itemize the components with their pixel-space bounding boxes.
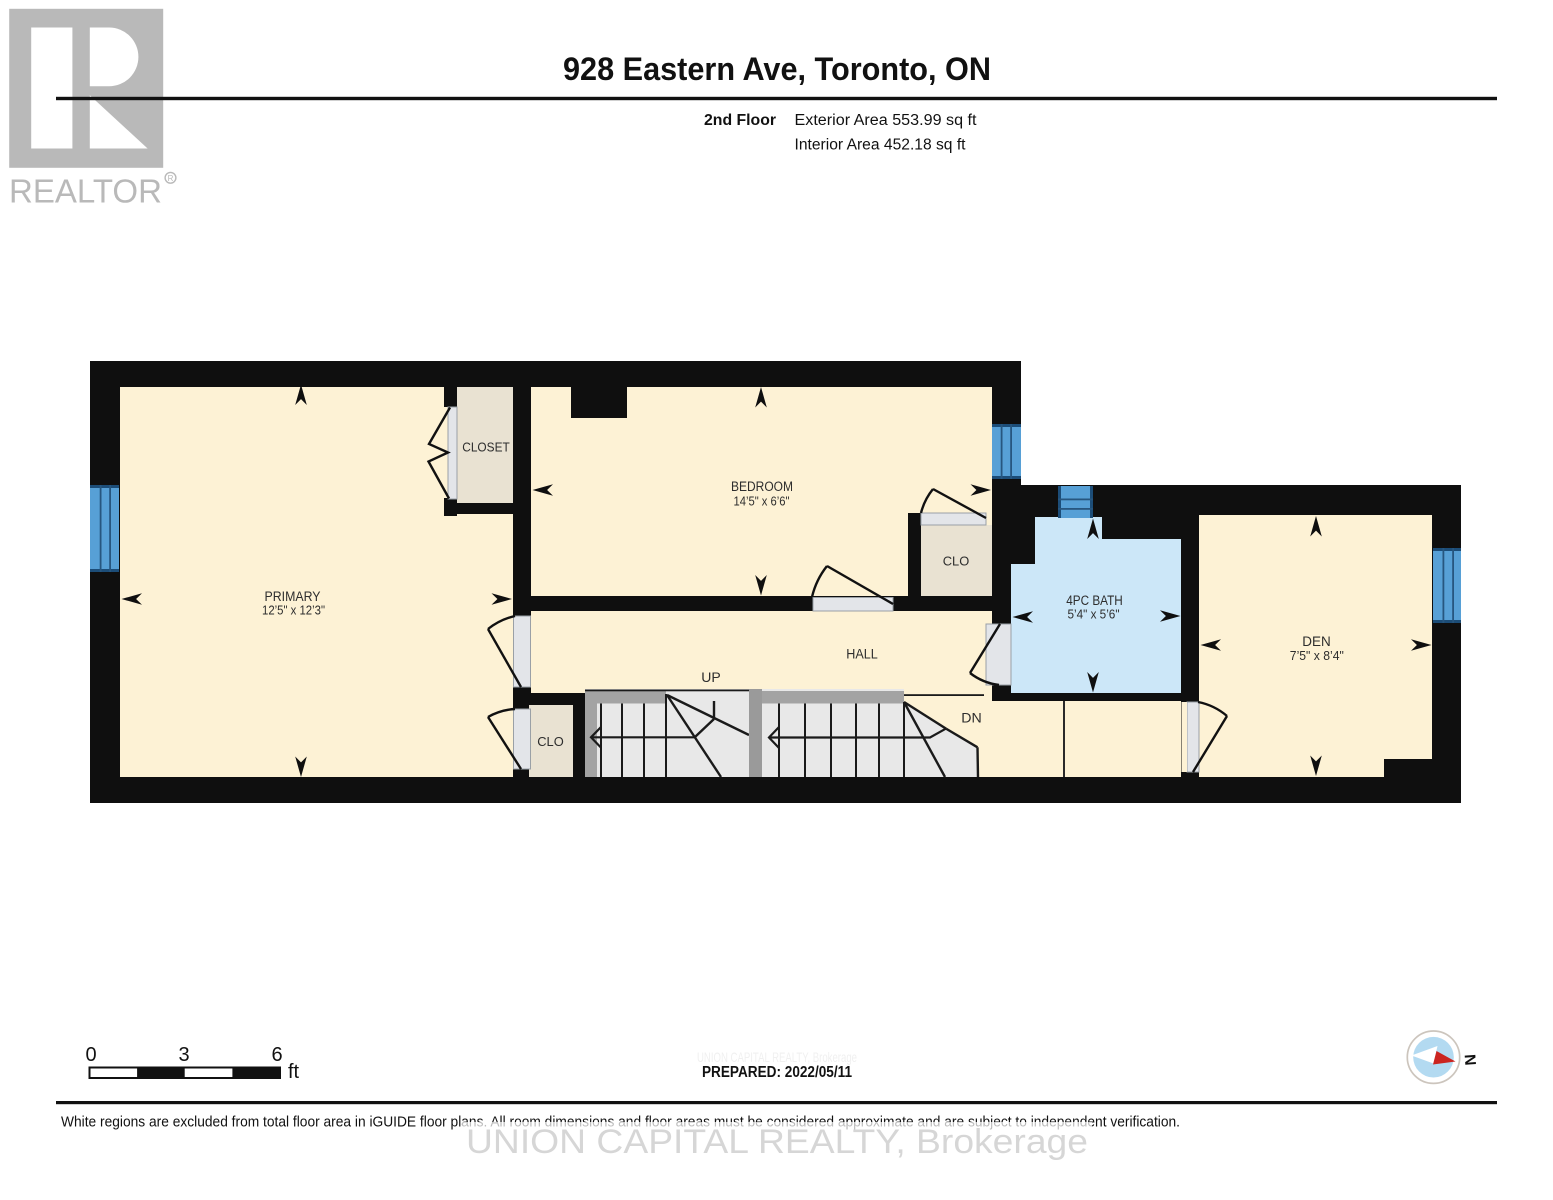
svg-text:REALTOR: REALTOR	[9, 173, 162, 210]
svg-text:14’5" x 6’6": 14’5" x 6’6"	[734, 493, 790, 508]
svg-text:CLO: CLO	[537, 734, 564, 749]
svg-text:UNION CAPITAL REALTY, Brokerag: UNION CAPITAL REALTY, Brokerage	[466, 1123, 1088, 1161]
svg-text:UNION CAPITAL REALTY, Brokerag: UNION CAPITAL REALTY, Brokerage	[697, 1049, 857, 1065]
svg-text:PREPARED: 2022/05/11: PREPARED: 2022/05/11	[702, 1064, 852, 1081]
svg-text:R: R	[168, 174, 174, 183]
svg-text:UP: UP	[701, 670, 721, 685]
svg-text:2nd Floor: 2nd Floor	[704, 112, 776, 129]
svg-text:3: 3	[178, 1044, 189, 1066]
svg-text:CLO: CLO	[943, 553, 970, 568]
svg-text:7’5" x 8’4": 7’5" x 8’4"	[1290, 648, 1344, 663]
svg-text:N: N	[1461, 1054, 1479, 1066]
svg-text:HALL: HALL	[846, 646, 878, 661]
svg-text:928 Eastern Ave, Toronto, ON: 928 Eastern Ave, Toronto, ON	[563, 51, 991, 87]
svg-text:CLOSET: CLOSET	[462, 439, 510, 454]
svg-text:Interior Area 452.18 sq ft: Interior Area 452.18 sq ft	[795, 137, 967, 154]
svg-text:5’4" x 5’6": 5’4" x 5’6"	[1068, 607, 1120, 622]
svg-text:BEDROOM: BEDROOM	[731, 479, 793, 494]
svg-text:6: 6	[271, 1044, 282, 1066]
svg-text:Exterior Area 553.99 sq ft: Exterior Area 553.99 sq ft	[795, 112, 978, 129]
svg-text:0: 0	[85, 1044, 96, 1066]
svg-text:DEN: DEN	[1302, 634, 1331, 649]
svg-text:ft: ft	[288, 1061, 300, 1083]
svg-text:12’5" x 12’3": 12’5" x 12’3"	[262, 602, 325, 617]
svg-text:DN: DN	[961, 710, 982, 725]
